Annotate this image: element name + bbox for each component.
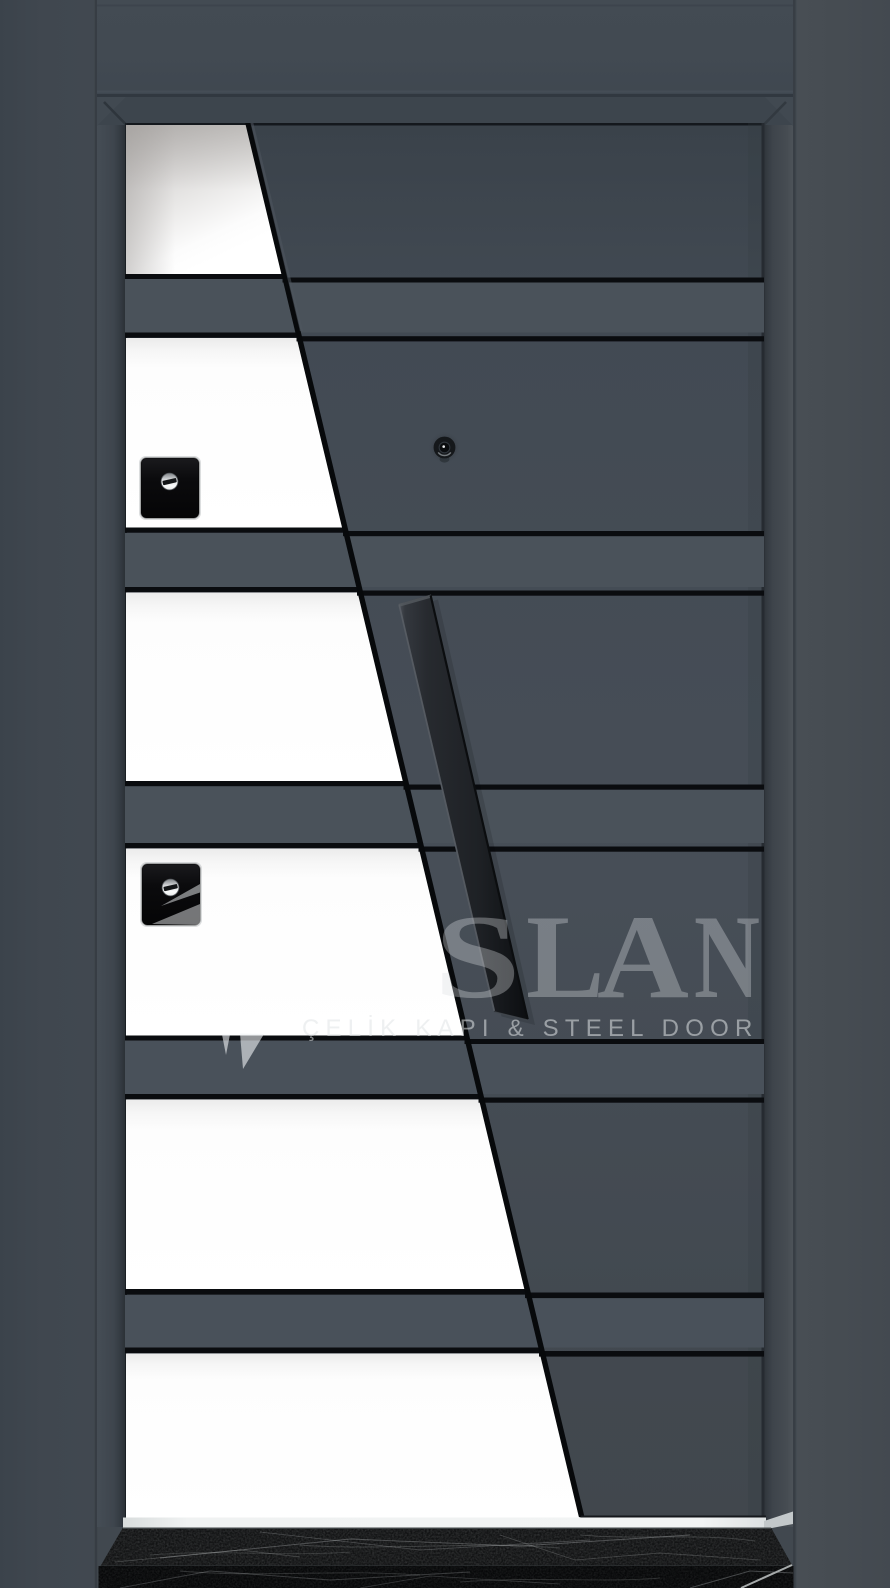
svg-text:N: N [694,891,760,1024]
svg-text:S: S [434,891,521,1024]
svg-text:L: L [526,890,604,1023]
svg-text:ÇELİK KAPI & STEEL DOOR: ÇELİK KAPI & STEEL DOOR [302,1015,758,1042]
svg-text:A: A [597,890,689,1023]
